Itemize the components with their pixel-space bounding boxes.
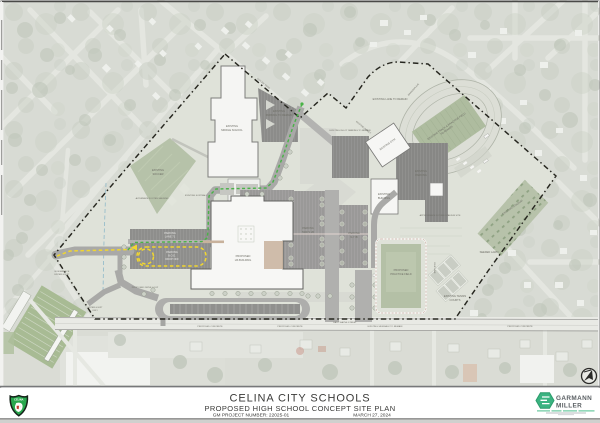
svg-text:EXISTING SIDEWALK TO REMAIN: EXISTING SIDEWALK TO REMAIN [368,325,403,328]
svg-text:ENTER & EXIT: ENTER & EXIT [88,307,104,309]
svg-text:PARKING: PARKING [348,231,359,235]
svg-text:SEEDED LAWN: SEEDED LAWN [480,250,499,254]
svg-text:PARKING: PARKING [166,250,177,254]
svg-text:PROPOSED: PROPOSED [236,254,251,258]
svg-text:GM PROJECT NUMBER: 22025-01: GM PROJECT NUMBER: 22025-01 [213,413,290,419]
svg-text:EXISTING: EXISTING [226,124,238,128]
svg-text:PARKING: PARKING [302,226,313,230]
svg-text:EXISTING TENNIS: EXISTING TENNIS [444,294,467,298]
svg-text:BUILDING: BUILDING [378,196,390,200]
svg-text:PARKING: PARKING [415,173,426,177]
svg-text:MARCH 27, 2024: MARCH 27, 2024 [353,413,391,419]
svg-text:EXISTING: EXISTING [152,168,164,172]
svg-text:EXISTING LANE TO REMAIN: EXISTING LANE TO REMAIN [373,97,408,101]
svg-text:ALTERNATE FOOTER SEEDING: ALTERNATE FOOTER SEEDING [136,197,169,200]
svg-text:530/71 LB: 530/71 LB [302,230,314,234]
svg-text:BUS/SERVICE: BUS/SERVICE [55,271,70,273]
svg-text:PROPOSED CONCRETE: PROPOSED CONCRETE [277,326,303,328]
svg-text:RILEY AVE: RILEY AVE [433,263,436,275]
svg-text:B.O.E.: B.O.E. [168,254,176,258]
svg-text:PROPOSED: PROPOSED [394,268,409,272]
svg-text:ENTER & EXIT: ENTER & EXIT [55,274,71,276]
svg-text:MILLER: MILLER [556,402,582,409]
svg-text:PROPOSED DRIVE LOOP: PROPOSED DRIVE LOOP [132,287,159,289]
svg-text:EXISTING SOFTBALL: EXISTING SOFTBALL [185,194,208,197]
svg-text:PROPOSED CONCRETE: PROPOSED CONCRETE [197,326,223,328]
svg-text:PROPOSED HIGH SCHOOL CONCEPT S: PROPOSED HIGH SCHOOL CONCEPT SITE PLAN [204,404,395,413]
svg-text:PARKING: PARKING [164,231,175,235]
svg-text:EXISTING: EXISTING [378,192,390,196]
svg-text:SOCCER: SOCCER [152,172,163,176]
svg-text:MIDDLE SCHOOL: MIDDLE SCHOOL [221,128,243,132]
svg-text:N-7 IB: N-7 IB [350,235,358,239]
svg-text:EAST WAYNE STREET: EAST WAYNE STREET [333,321,357,324]
svg-text:PRACTICE FIELD: PRACTICE FIELD [390,272,411,276]
svg-text:GARMANN: GARMANN [556,395,592,402]
svg-text:PARKING TO REMAIN: PARKING TO REMAIN [266,113,293,117]
svg-text:COURTS: COURTS [450,298,461,302]
svg-text:HS BUILDING: HS BUILDING [235,258,252,262]
svg-text:PROPOSED CONCRETE: PROPOSED CONCRETE [507,326,533,328]
svg-text:CELINA CITY SCHOOLS: CELINA CITY SCHOOLS [230,392,371,404]
svg-text:APPROXIMATE FUTURE STADIUM SIT: APPROXIMATE FUTURE STADIUM SITE [420,214,461,217]
svg-text:ONLY: ONLY [92,310,98,312]
svg-text:DROP OFF: DROP OFF [165,257,179,261]
svg-text:CELINA: CELINA [14,399,24,402]
svg-text:LANE 71: LANE 71 [165,235,176,239]
svg-text:EXISTING: EXISTING [415,169,427,173]
svg-text:EXISTING: EXISTING [273,109,285,113]
